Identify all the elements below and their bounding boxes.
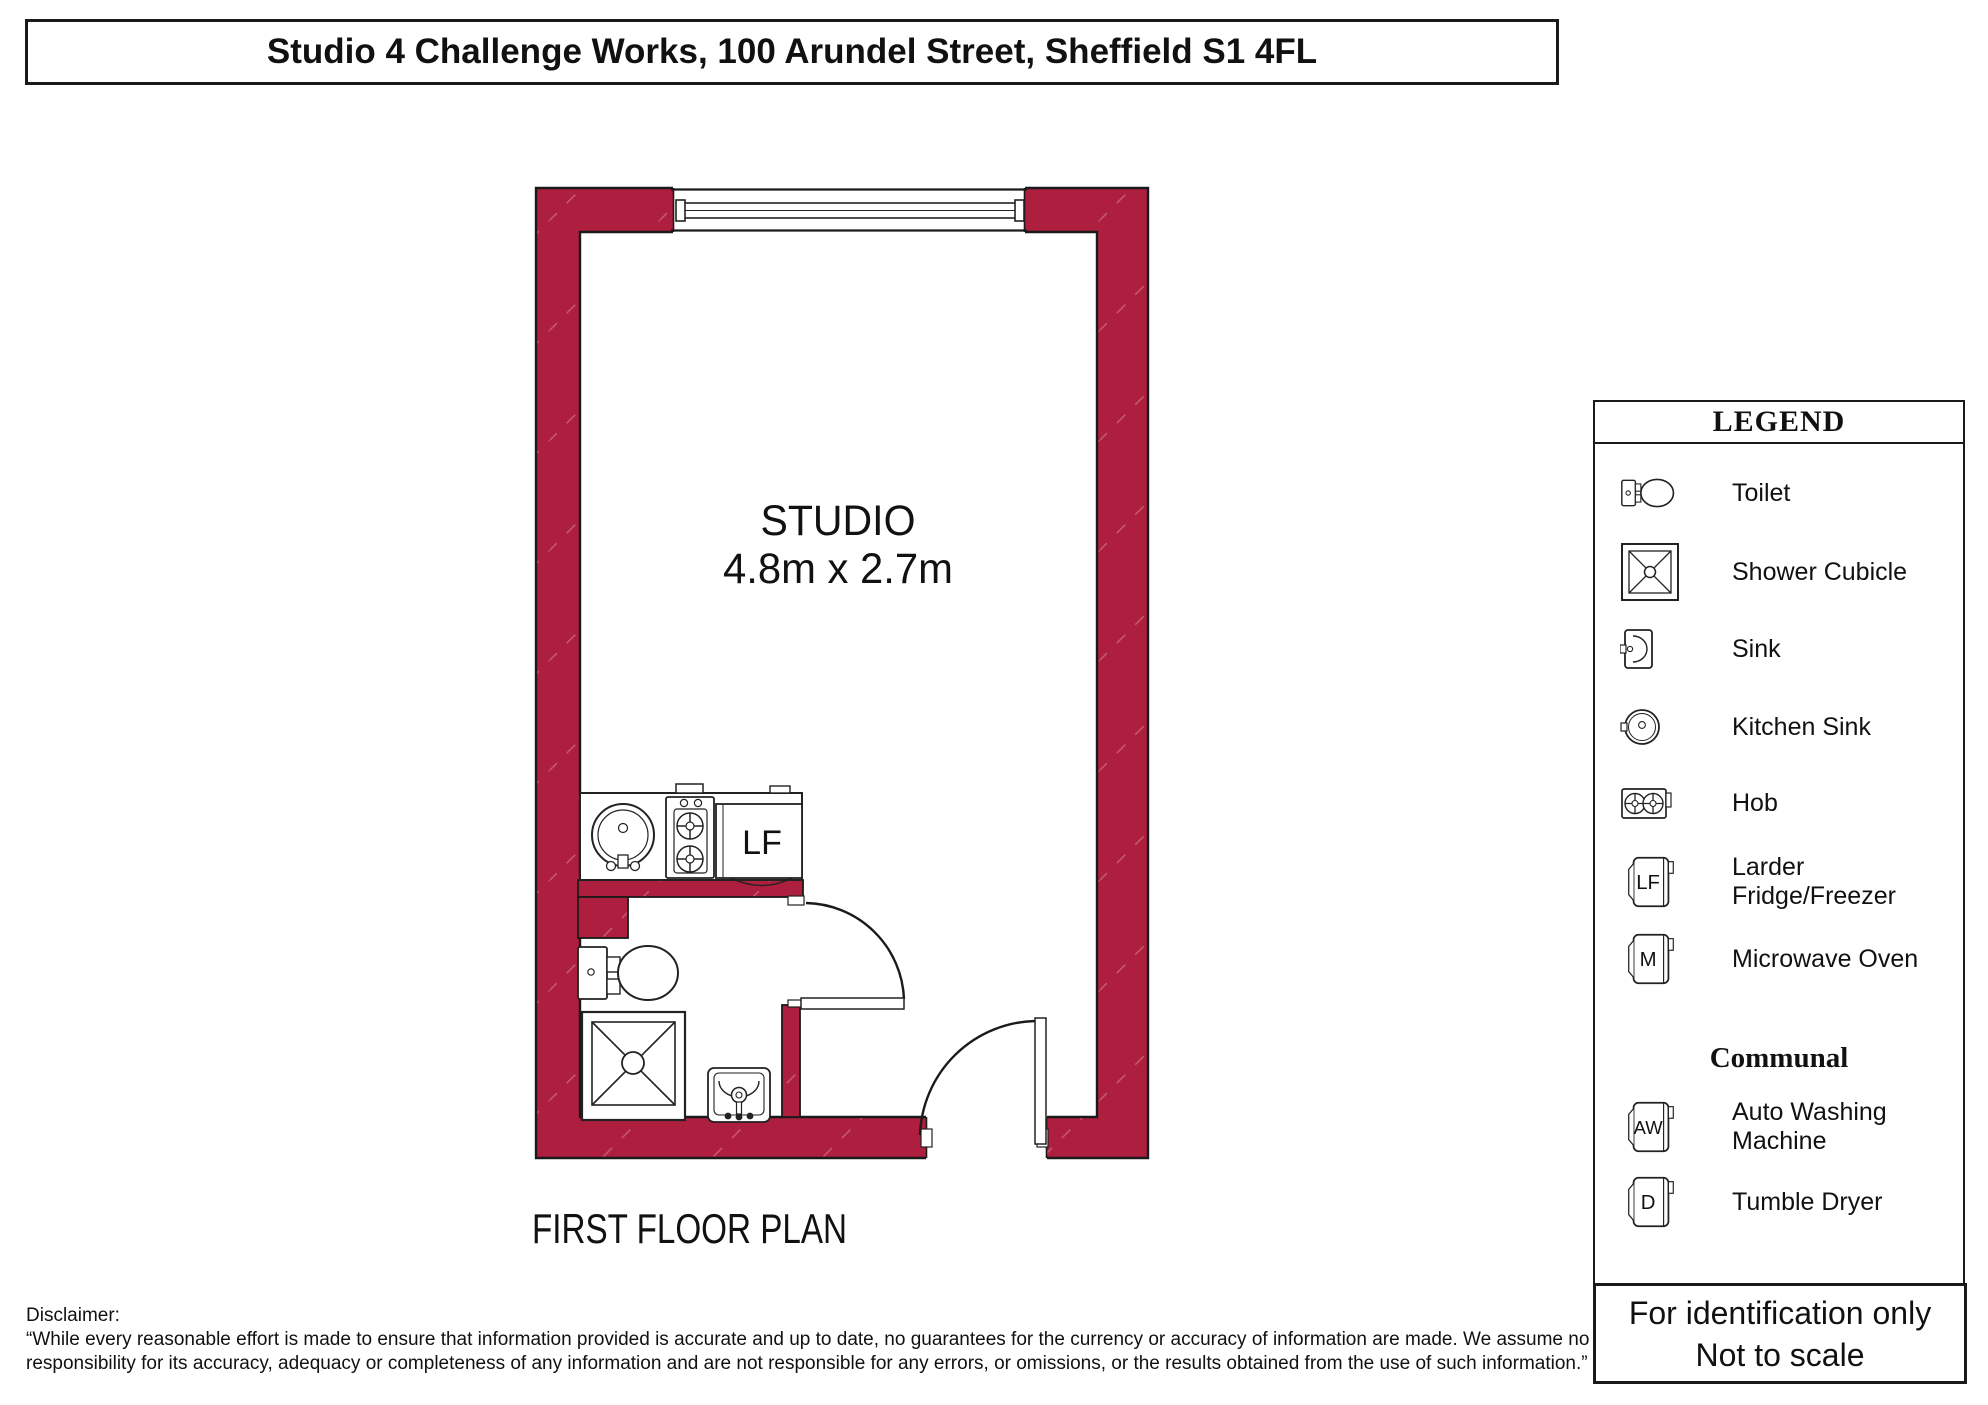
- communal-heading: Communal: [1595, 1042, 1963, 1075]
- legend-label: Toilet: [1732, 465, 1790, 521]
- fridge-label: LF: [742, 824, 782, 862]
- legend-row-microwave: M Microwave Oven: [1595, 931, 1963, 987]
- shower-cubicle-icon: [1620, 544, 1680, 600]
- identification-line1: For identification only: [1629, 1292, 1931, 1334]
- legend-label: Larder Fridge/Freezer: [1732, 854, 1963, 910]
- bathroom-partition-wall: [782, 1005, 800, 1117]
- tumble-dryer-icon: D: [1620, 1174, 1682, 1230]
- kitchen-sink-icon: [1620, 699, 1662, 755]
- entry-door-opening: [926, 1115, 1047, 1161]
- legend-row-larder-fridge: LF Larder Fridge/Freezer: [1595, 854, 1963, 910]
- microwave-icon: M: [1620, 931, 1682, 987]
- disclaimer: Disclaimer: “While every reasonable effo…: [26, 1304, 1589, 1376]
- hob-icon: [1620, 775, 1678, 831]
- legend-label: Kitchen Sink: [1732, 699, 1871, 755]
- kitchen-wall: [578, 880, 803, 897]
- legend-label: Sink: [1732, 621, 1781, 677]
- toilet-icon: [578, 946, 678, 1000]
- larder-fridge-icon: LF: [1620, 854, 1682, 910]
- disclaimer-line2: responsibility for its accuracy, adequac…: [26, 1352, 1589, 1376]
- legend-row-sink: Sink: [1595, 621, 1963, 677]
- disclaimer-label: Disclaimer:: [26, 1304, 1589, 1328]
- legend-row-shower: Shower Cubicle: [1595, 544, 1963, 600]
- legend-heading: LEGEND: [1595, 402, 1963, 444]
- room-dimensions: 4.8m x 2.7m: [723, 545, 953, 593]
- window-icon: [676, 200, 1024, 221]
- sink-icon: [1620, 621, 1654, 677]
- legend-label: Tumble Dryer: [1732, 1174, 1883, 1230]
- identification-note: For identification only Not to scale: [1593, 1283, 1967, 1384]
- floor-plan-label: FIRST FLOOR PLAN: [532, 1205, 847, 1252]
- legend-label: Auto Washing Machine: [1732, 1099, 1963, 1155]
- disclaimer-line1: “While every reasonable effort is made t…: [26, 1328, 1589, 1352]
- legend-label: Hob: [1732, 775, 1778, 831]
- room-label: STUDIO: [761, 497, 916, 545]
- svg-text:M: M: [1640, 949, 1657, 971]
- legend-row-washing-machine: AW Auto Washing Machine: [1595, 1099, 1963, 1155]
- legend-row-kitchen-sink: Kitchen Sink: [1595, 699, 1963, 755]
- svg-text:D: D: [1641, 1192, 1656, 1214]
- svg-text:LF: LF: [1636, 872, 1660, 894]
- washing-machine-icon: AW: [1620, 1099, 1682, 1155]
- legend-row-hob: Hob: [1595, 775, 1963, 831]
- floorplan-page: Studio 4 Challenge Works, 100 Arundel St…: [0, 0, 1988, 1405]
- toilet-icon: [1620, 465, 1678, 521]
- bathroom-sink-icon: [708, 1068, 770, 1122]
- svg-text:AW: AW: [1634, 1117, 1664, 1138]
- legend-panel: LEGEND Toilet: [1593, 400, 1965, 1287]
- legend-row-toilet: Toilet: [1595, 465, 1963, 521]
- identification-line2: Not to scale: [1696, 1334, 1865, 1376]
- legend-row-tumble-dryer: D Tumble Dryer: [1595, 1174, 1963, 1230]
- hob-icon: [666, 784, 714, 878]
- bathroom-door: [788, 896, 904, 1009]
- wall-pier: [578, 897, 628, 938]
- legend-label: Microwave Oven: [1732, 931, 1918, 987]
- shower-cubicle-icon: [582, 1012, 685, 1120]
- legend-label: Shower Cubicle: [1732, 544, 1907, 600]
